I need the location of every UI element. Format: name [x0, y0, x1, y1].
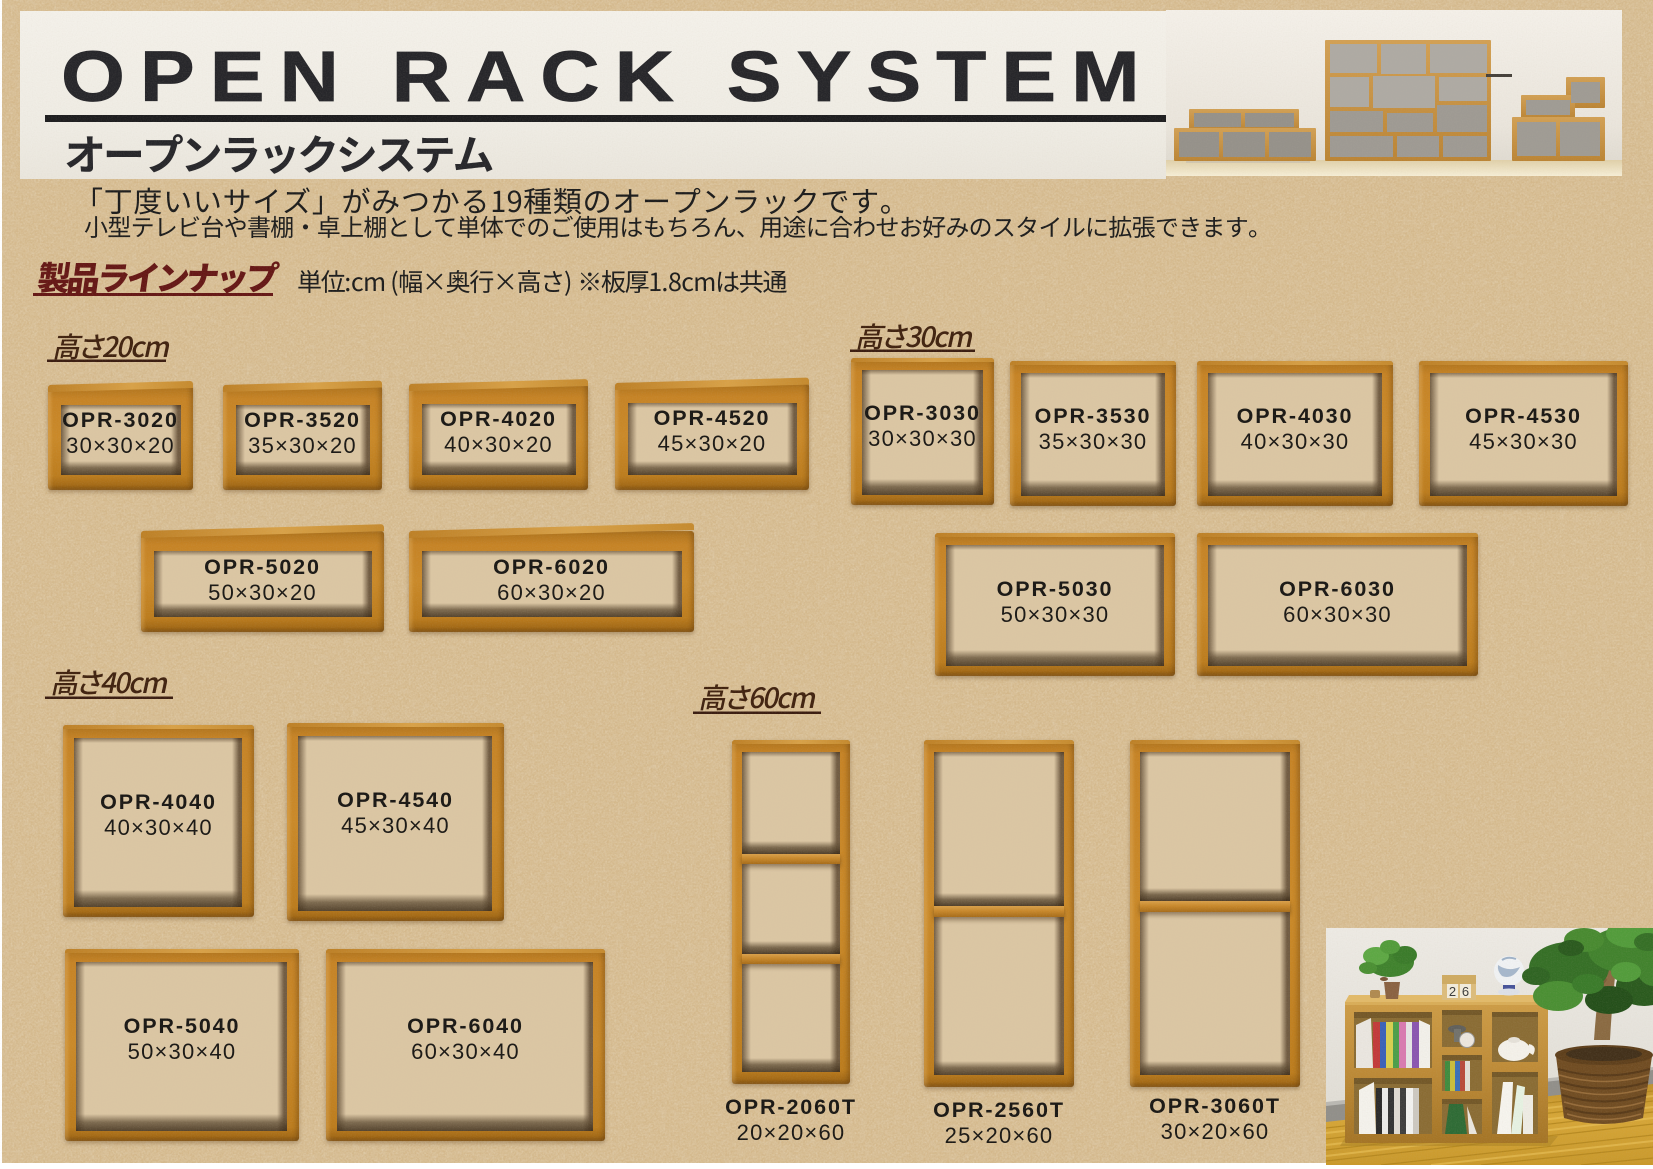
svg-text:2: 2 — [1449, 984, 1456, 999]
svg-text:6: 6 — [1462, 984, 1469, 999]
